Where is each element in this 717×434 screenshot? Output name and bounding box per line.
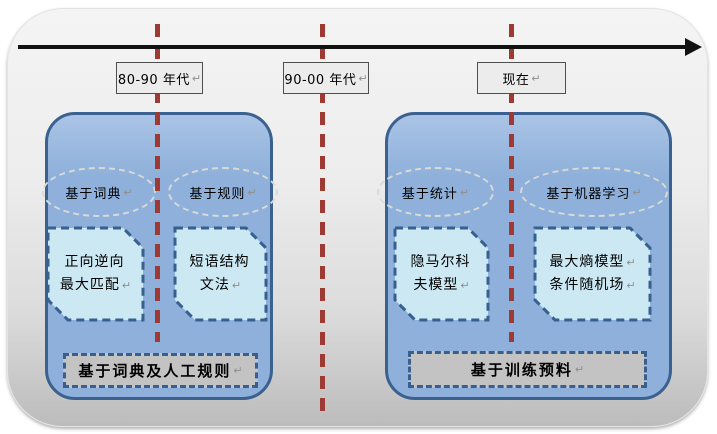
timeline-arrow-line — [18, 45, 688, 49]
method-box-hidden-markov-model: 隐马尔科 夫模型↵ — [393, 226, 490, 322]
return-mark-icon: ↵ — [460, 279, 469, 292]
return-mark-icon: ↵ — [123, 186, 132, 199]
method-line: 最大匹配 — [60, 277, 120, 293]
method-text: 正向逆向 最大匹配↵ — [46, 226, 145, 322]
caption-dictionary-manual-rules: 基于词典及人工规则 ↵ — [63, 353, 258, 388]
return-mark-icon: ↵ — [232, 279, 241, 292]
era-label-text: 90-00 年代 — [284, 69, 356, 88]
approach-ellipse-dictionary: 基于词典 ↵ — [42, 167, 156, 217]
caption-label: 基于训练预料 — [471, 359, 573, 380]
approach-ellipse-rules: 基于规则 ↵ — [168, 167, 278, 217]
approach-label: 基于机器学习 — [546, 183, 630, 202]
return-mark-icon: ↵ — [575, 363, 584, 376]
return-mark-icon: ↵ — [460, 186, 469, 199]
method-line: 正向逆向 — [65, 254, 125, 270]
return-mark-icon: ↵ — [531, 72, 540, 85]
caption-training-corpus: 基于训练预料 ↵ — [408, 351, 647, 388]
era-label-now: 现在 ↵ — [477, 62, 566, 94]
method-box-phrase-structure-grammar: 短语结构 文法↵ — [173, 226, 268, 322]
era-label-text: 80-90 年代 — [118, 69, 190, 88]
return-mark-icon: ↵ — [626, 256, 635, 269]
return-mark-icon: ↵ — [632, 186, 641, 199]
return-mark-icon: ↵ — [122, 279, 131, 292]
approach-ellipse-statistics: 基于统计 ↵ — [377, 167, 494, 217]
method-line: 文法 — [200, 277, 230, 293]
approach-label: 基于规则 — [189, 183, 245, 202]
method-line: 夫模型 — [413, 277, 458, 293]
caption-label: 基于词典及人工规则 — [78, 360, 231, 381]
era-label-80-90: 80-90 年代 ↵ — [116, 62, 203, 94]
method-text: 隐马尔科 夫模型↵ — [393, 226, 490, 322]
return-mark-icon: ↵ — [626, 279, 635, 292]
approach-ellipse-machine-learning: 基于机器学习 ↵ — [520, 167, 668, 217]
method-text: 短语结构 文法↵ — [173, 226, 268, 322]
return-mark-icon: ↵ — [358, 72, 367, 85]
method-text: 最大熵模型↵ 条件随机场↵ — [533, 226, 652, 322]
era-label-text: 现在 — [502, 69, 529, 88]
method-line: 最大熵模型 — [549, 254, 624, 270]
approach-label: 基于词典 — [65, 183, 121, 202]
return-mark-icon: ↵ — [192, 72, 201, 85]
timeline-arrowhead-icon — [685, 38, 702, 56]
method-line: 短语结构 — [190, 254, 250, 270]
group-box-statistics-ml: 基于统计 ↵ 基于机器学习 ↵ 隐马尔科 夫模型↵ 最大熵模型↵ 条件随机场↵ — [385, 112, 672, 400]
timeline-diagram: 80-90 年代 ↵ 90-00 年代 ↵ 现在 ↵ 基于词典 ↵ 基于规则 ↵… — [0, 0, 717, 434]
approach-label: 基于统计 — [402, 183, 458, 202]
era-label-90-00: 90-00 年代 ↵ — [283, 62, 369, 94]
method-box-max-matching: 正向逆向 最大匹配↵ — [46, 226, 145, 322]
method-box-maxent-crf: 最大熵模型↵ 条件随机场↵ — [533, 226, 652, 322]
return-mark-icon: ↵ — [247, 186, 256, 199]
method-line: 隐马尔科 — [411, 254, 471, 270]
method-line: 条件随机场 — [549, 277, 624, 293]
return-mark-icon: ↵ — [233, 364, 242, 377]
